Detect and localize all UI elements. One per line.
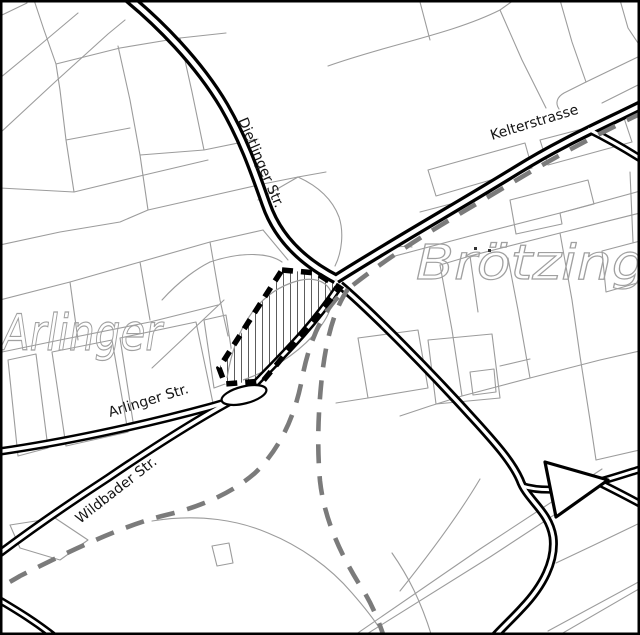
planned-route-south xyxy=(318,289,384,635)
road-arlinger-casing xyxy=(0,386,260,452)
traffic-island-triangle xyxy=(545,462,608,517)
location-map: Arlinger Brötzingen xyxy=(0,0,640,635)
road-southeast-fill xyxy=(340,285,553,635)
region-label-broetzingen: Brötzingen xyxy=(416,235,640,291)
road-southeast-casing xyxy=(340,285,553,635)
region-label-arlinger: Arlinger xyxy=(0,304,165,362)
map-canvas: Arlinger Brötzingen xyxy=(0,0,640,635)
